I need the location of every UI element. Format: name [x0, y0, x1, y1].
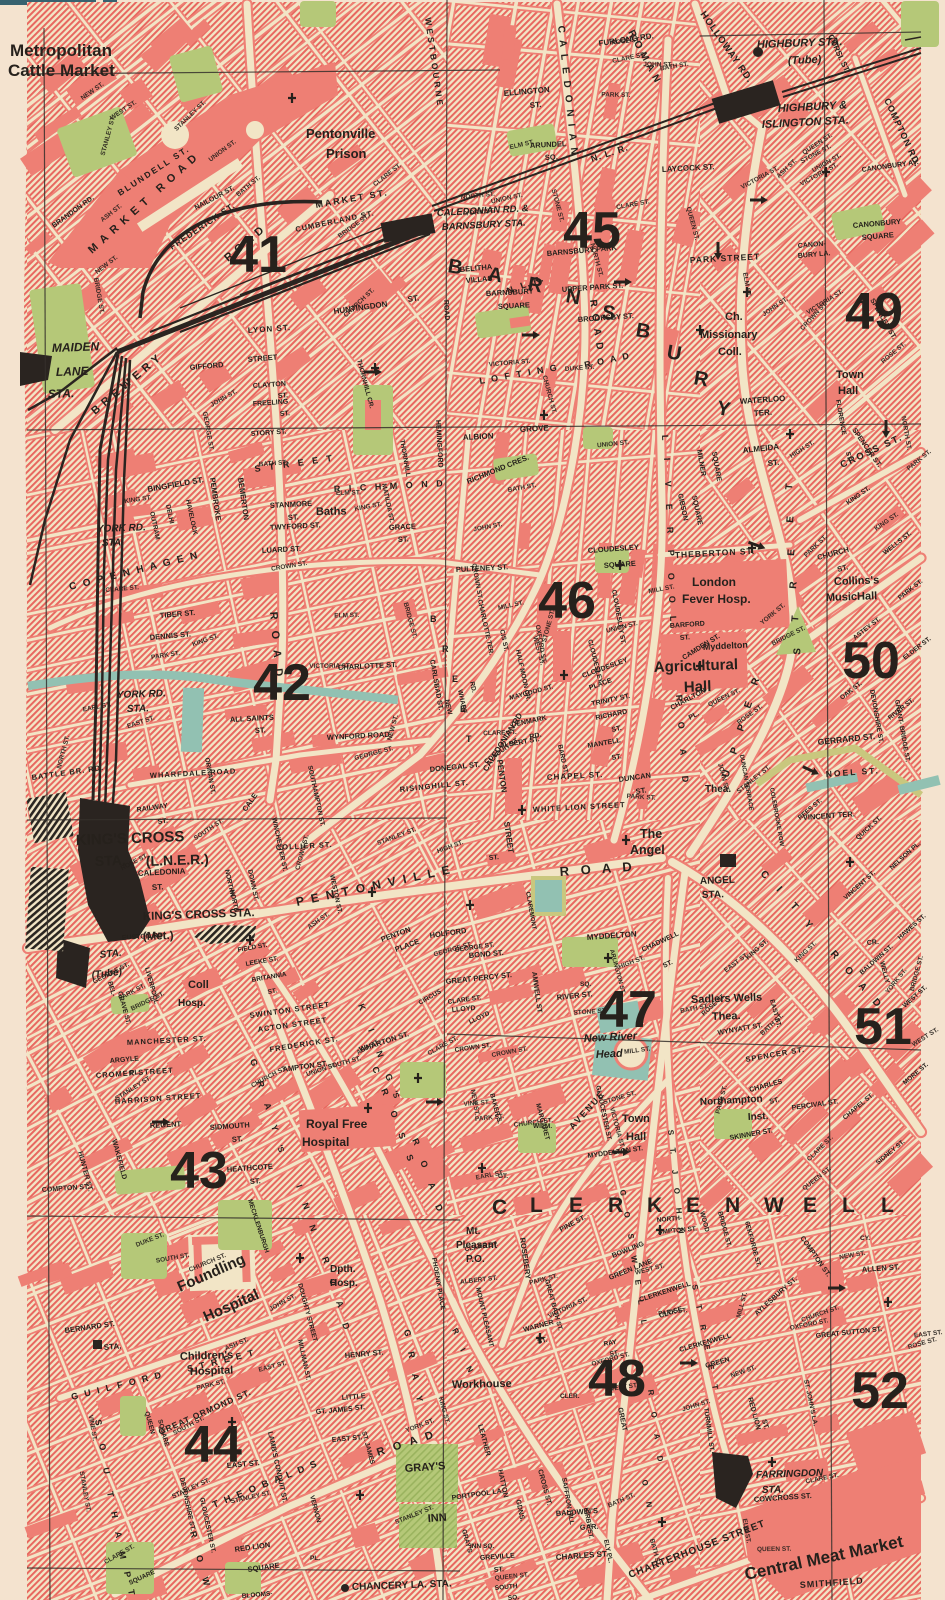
svg-text:O: O — [672, 1187, 682, 1194]
svg-text:Prison: Prison — [326, 146, 367, 161]
svg-text:Cattle Market: Cattle Market — [8, 61, 115, 80]
svg-text:E: E — [686, 1194, 700, 1217]
svg-text:E: E — [452, 674, 458, 684]
svg-text:G: G — [618, 1189, 628, 1196]
svg-text:V: V — [663, 481, 673, 488]
svg-text:Inst.: Inst. — [748, 1111, 769, 1123]
svg-text:C: C — [492, 1196, 507, 1219]
svg-text:QUEEN ST.: QUEEN ST. — [757, 1546, 792, 1554]
svg-text:Mt.: Mt. — [466, 1226, 481, 1237]
svg-text:Pentonville: Pentonville — [306, 126, 375, 141]
svg-text:Collins's: Collins's — [834, 574, 880, 588]
svg-text:Hospital: Hospital — [302, 1135, 349, 1149]
svg-text:O: O — [649, 1411, 659, 1418]
svg-text:ST.: ST. — [355, 1404, 366, 1412]
svg-text:Royal Free: Royal Free — [306, 1117, 368, 1131]
svg-text:ELM ST.: ELM ST. — [334, 612, 359, 619]
svg-text:ST.: ST. — [250, 1176, 261, 1186]
svg-text:O: O — [676, 721, 687, 729]
svg-text:SQ.: SQ. — [508, 1594, 520, 1600]
svg-text:ST.: ST. — [680, 634, 691, 642]
svg-text:CLARE ST.: CLARE ST. — [483, 729, 517, 737]
svg-text:W: W — [764, 1194, 784, 1217]
svg-text:The: The — [640, 827, 662, 841]
svg-text:ST.: ST. — [489, 854, 500, 862]
svg-text:London: London — [692, 575, 736, 589]
svg-text:R: R — [608, 1194, 623, 1217]
svg-text:ST.: ST. — [157, 818, 168, 826]
svg-text:Ch.: Ch. — [725, 311, 743, 323]
svg-text:ST.: ST. — [529, 100, 541, 110]
svg-text:ST.: ST. — [255, 725, 266, 735]
svg-text:O: O — [640, 1479, 650, 1486]
svg-text:L: L — [881, 1194, 894, 1217]
svg-text:E: E — [460, 704, 466, 714]
svg-text:L: L — [842, 1194, 855, 1217]
svg-text:Fever Hosp.: Fever Hosp. — [682, 592, 751, 606]
svg-text:PL.: PL. — [310, 1555, 320, 1562]
svg-text:Angel: Angel — [630, 843, 665, 857]
svg-text:L: L — [668, 616, 678, 623]
svg-text:B: B — [430, 614, 437, 624]
svg-text:ROAD: ROAD — [442, 300, 450, 321]
svg-text:Workhouse: Workhouse — [452, 1378, 512, 1391]
svg-text:CR.: CR. — [867, 939, 880, 947]
svg-text:SQ.: SQ. — [580, 981, 591, 988]
svg-text:ALBION: ALBION — [463, 431, 494, 442]
svg-text:Hall: Hall — [626, 1131, 646, 1143]
svg-text:VICTORIA ST.: VICTORIA ST. — [309, 663, 351, 670]
svg-text:ST.: ST. — [494, 1566, 505, 1574]
svg-text:T: T — [466, 734, 472, 744]
svg-text:Agricultural: Agricultural — [654, 656, 739, 676]
svg-text:K: K — [647, 1194, 662, 1217]
svg-text:L: L — [530, 1194, 543, 1217]
svg-text:O: O — [666, 573, 676, 581]
svg-text:J: J — [670, 1169, 679, 1174]
svg-text:YORK RD.: YORK RD. — [117, 688, 166, 701]
svg-text:Coll.: Coll. — [718, 346, 742, 358]
svg-text:E: E — [803, 1194, 817, 1217]
svg-text:STA.: STA. — [127, 703, 149, 715]
svg-text:GROVE: GROVE — [520, 423, 550, 434]
svg-text:Thea.: Thea. — [712, 1010, 741, 1023]
svg-text:E: E — [785, 515, 797, 523]
svg-text:INN: INN — [427, 1512, 447, 1525]
svg-text:T: T — [790, 615, 801, 622]
svg-text:Town: Town — [622, 1113, 650, 1125]
svg-text:PARK ST.: PARK ST. — [601, 91, 630, 99]
svg-text:Coll: Coll — [188, 979, 209, 991]
svg-text:STA.: STA. — [99, 948, 122, 961]
svg-text:MusicHall: MusicHall — [826, 590, 878, 604]
svg-text:S: S — [792, 647, 804, 655]
svg-text:N: N — [725, 1194, 740, 1217]
svg-text:E: E — [664, 504, 674, 511]
svg-text:ST.: ST. — [152, 882, 164, 892]
svg-text:50: 50 — [842, 632, 900, 690]
svg-text:ST.: ST. — [398, 534, 409, 544]
svg-text:L: L — [660, 435, 670, 442]
svg-text:H: H — [674, 1207, 683, 1214]
svg-text:INN SQ.: INN SQ. — [470, 1543, 494, 1550]
svg-text:ANGEL: ANGEL — [700, 875, 735, 887]
svg-text:R: R — [665, 527, 675, 535]
svg-text:52: 52 — [851, 1362, 909, 1420]
svg-text:ELM ST.: ELM ST. — [336, 489, 361, 497]
svg-text:O: O — [667, 596, 677, 604]
svg-text:Hosp.: Hosp. — [178, 998, 206, 1009]
svg-text:ST.: ST. — [767, 458, 779, 468]
svg-text:Head: Head — [596, 1048, 624, 1061]
svg-text:ST.: ST. — [232, 1134, 243, 1144]
svg-text:STA.: STA. — [102, 537, 124, 549]
svg-text:Dpth.: Dpth. — [330, 1264, 356, 1275]
svg-text:P: P — [666, 550, 676, 557]
svg-text:CLER.: CLER. — [560, 1393, 580, 1400]
svg-text:ST.: ST. — [288, 512, 299, 522]
svg-text:O: O — [622, 1211, 632, 1218]
svg-text:Metropolitan: Metropolitan — [10, 41, 112, 60]
svg-text:E: E — [569, 1194, 583, 1217]
svg-text:CY.: CY. — [860, 1235, 870, 1242]
svg-text:GRACE: GRACE — [389, 522, 417, 532]
svg-text:ST.: ST. — [407, 293, 420, 304]
svg-text:I: I — [662, 458, 672, 461]
svg-text:STA.: STA. — [702, 889, 725, 901]
svg-text:Missionary: Missionary — [700, 329, 758, 341]
svg-text:SQ.: SQ. — [545, 152, 558, 162]
svg-text:43: 43 — [170, 1142, 228, 1200]
svg-text:(Tube): (Tube) — [788, 54, 822, 67]
svg-text:P.O.: P.O. — [466, 1254, 485, 1265]
svg-text:T.: T. — [668, 1147, 678, 1154]
svg-text:R: R — [442, 644, 449, 654]
svg-text:TER.: TER. — [754, 408, 773, 418]
svg-text:E: E — [786, 548, 798, 556]
svg-text:Baths: Baths — [316, 505, 347, 518]
svg-text:LANE: LANE — [56, 364, 90, 379]
svg-text:T: T — [784, 483, 795, 490]
svg-text:MAIDEN: MAIDEN — [52, 339, 100, 355]
svg-text:STA.: STA. — [103, 1341, 121, 1352]
svg-text:Hall: Hall — [838, 385, 858, 397]
svg-text:SQUARE: SQUARE — [498, 300, 531, 311]
svg-text:YORK RD.: YORK RD. — [97, 522, 146, 535]
svg-text:ST.: ST. — [280, 410, 291, 418]
svg-text:Town: Town — [836, 369, 864, 381]
svg-text:STA.: STA. — [48, 386, 75, 401]
